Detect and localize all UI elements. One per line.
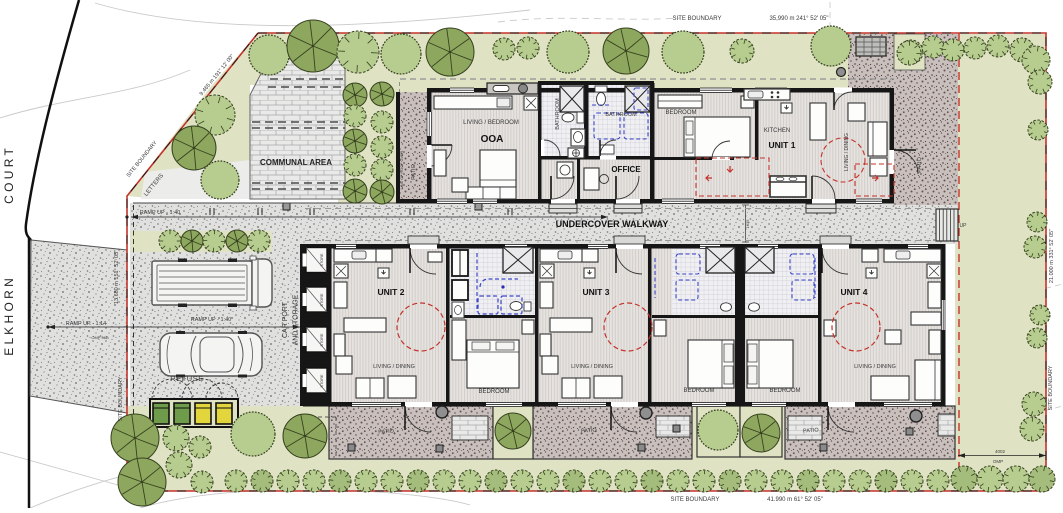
svg-text:KITCHEN: KITCHEN xyxy=(764,128,790,134)
svg-text:PATIO: PATIO xyxy=(581,427,598,434)
svg-text:BEDROOM: BEDROOM xyxy=(665,110,696,116)
svg-text:C O U R T: C O U R T xyxy=(2,147,16,203)
svg-text:E L K H O R N: E L K H O R N xyxy=(2,278,16,356)
svg-text:PATIO.: PATIO. xyxy=(378,428,396,435)
svg-text:1935: 1935 xyxy=(745,219,750,229)
svg-text:SITE BOUNDARY: SITE BOUNDARY xyxy=(118,376,124,421)
svg-text:SITE BOUNDARY: SITE BOUNDARY xyxy=(671,497,720,503)
svg-text:BATHROOM: BATHROOM xyxy=(605,112,637,118)
svg-text:LIVING / DINING: LIVING / DINING xyxy=(571,364,613,370)
svg-text:UNDERCOVER WALKWAY: UNDERCOVER WALKWAY xyxy=(556,219,669,229)
svg-text:RAMP UP - 1:40: RAMP UP - 1:40 xyxy=(140,210,180,216)
svg-text:UNIT 1: UNIT 1 xyxy=(769,140,796,150)
svg-text:LIVING / DINING: LIVING / DINING xyxy=(844,133,850,171)
svg-text:LINE OF ROOF OVER: LINE OF ROOF OVER xyxy=(400,150,404,189)
svg-text:UP: UP xyxy=(960,223,968,229)
svg-text:RAMP UP - 1:14: RAMP UP - 1:14 xyxy=(66,321,106,327)
svg-text:SITE BOUNDARY: SITE BOUNDARY xyxy=(673,16,722,22)
svg-text:BEDROOM: BEDROOM xyxy=(478,389,509,395)
svg-text:LIVING / BEDROOM: LIVING / BEDROOM xyxy=(463,120,519,126)
svg-text:OMP: OMP xyxy=(993,459,1003,464)
svg-text:OOA: OOA xyxy=(481,134,504,145)
svg-text:BEDROOM: BEDROOM xyxy=(769,388,800,394)
svg-text:STORE: STORE xyxy=(320,293,324,306)
svg-text:21.000 m 331° 52' 05": 21.000 m 331° 52' 05" xyxy=(1049,229,1055,283)
svg-text:4002: 4002 xyxy=(995,449,1006,454)
svg-text:COMMUNAL AREA: COMMUNAL AREA xyxy=(260,158,332,167)
svg-text:OMP 56B: OMP 56B xyxy=(91,335,109,340)
svg-text:OFFICE: OFFICE xyxy=(611,165,641,174)
svg-text:BEDROOM: BEDROOM xyxy=(683,388,714,394)
svg-text:UNIT 2: UNIT 2 xyxy=(378,287,405,297)
svg-text:AND STORAGE: AND STORAGE xyxy=(293,294,300,345)
svg-text:35,990 m 241° 52' 05": 35,990 m 241° 52' 05" xyxy=(769,16,828,22)
svg-text:41.990 m 61° 52' 05": 41.990 m 61° 52' 05" xyxy=(767,497,823,503)
svg-text:STORE: STORE xyxy=(320,374,324,387)
svg-text:UNIT 3: UNIT 3 xyxy=(583,287,610,297)
svg-text:BATHROOM: BATHROOM xyxy=(555,98,561,130)
svg-text:UNIT 4: UNIT 4 xyxy=(841,287,868,297)
svg-text:PATIO: PATIO xyxy=(411,163,417,179)
svg-text:RAMP UP - 1:40: RAMP UP - 1:40 xyxy=(191,317,231,323)
svg-text:13.680 m 151° 52' 05": 13.680 m 151° 52' 05" xyxy=(114,250,120,304)
svg-text:LIVING / DINING: LIVING / DINING xyxy=(854,364,896,370)
svg-text:PATIO: PATIO xyxy=(803,427,820,434)
svg-text:CAR PORT: CAR PORT xyxy=(282,301,289,338)
svg-text:LIVING / DINING: LIVING / DINING xyxy=(373,364,415,370)
svg-text:REFUSE: REFUSE xyxy=(170,374,203,383)
svg-text:STORE: STORE xyxy=(320,333,324,346)
svg-text:STORE: STORE xyxy=(320,253,324,266)
svg-text:PATIO: PATIO xyxy=(917,156,923,172)
svg-text:SITE BOUNDARY: SITE BOUNDARY xyxy=(1048,365,1054,410)
